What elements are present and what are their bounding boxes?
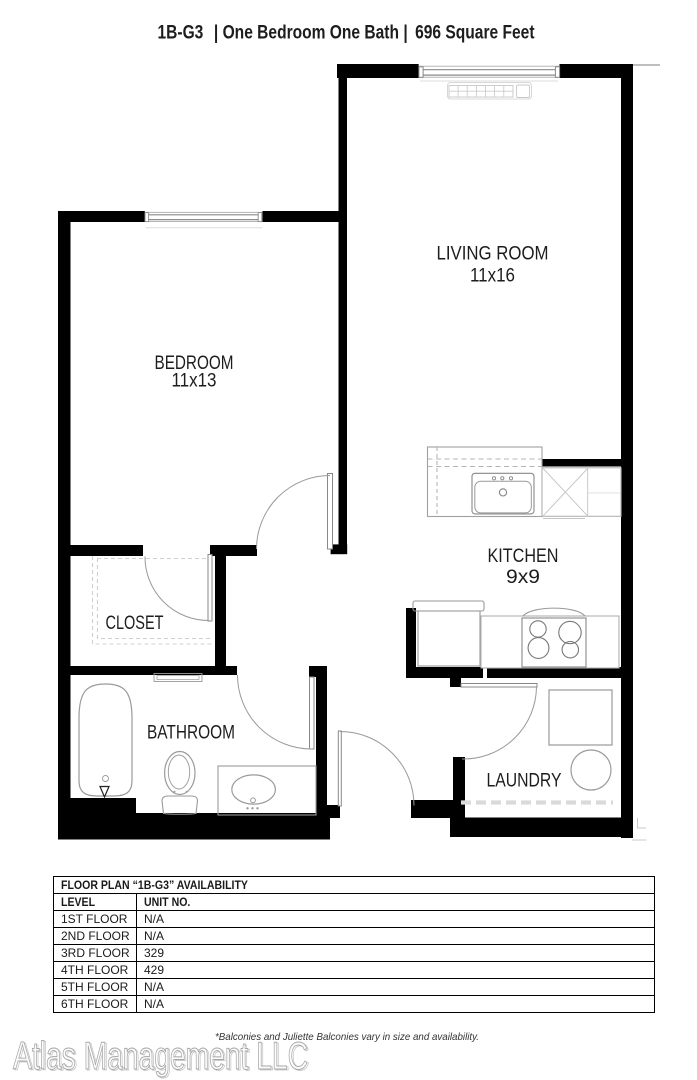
svg-text:LIVING ROOM: LIVING ROOM [437,244,549,265]
svg-text:KITCHEN: KITCHEN [488,546,559,567]
svg-text:9x9: 9x9 [506,567,540,588]
svg-text:1B-G3 | One Bedroom One Bath: 1B-G3 | One Bedroom One Bath | 696 Squar… [158,22,535,44]
svg-text:11x16: 11x16 [470,266,515,287]
svg-text:11x13: 11x13 [172,371,217,392]
svg-text:BATHROOM: BATHROOM [147,723,235,744]
svg-text:CLOSET: CLOSET [106,613,164,634]
svg-text:LAUNDRY: LAUNDRY [487,771,562,792]
svg-text:Atlas Management LLC: Atlas Management LLC [13,1035,308,1078]
